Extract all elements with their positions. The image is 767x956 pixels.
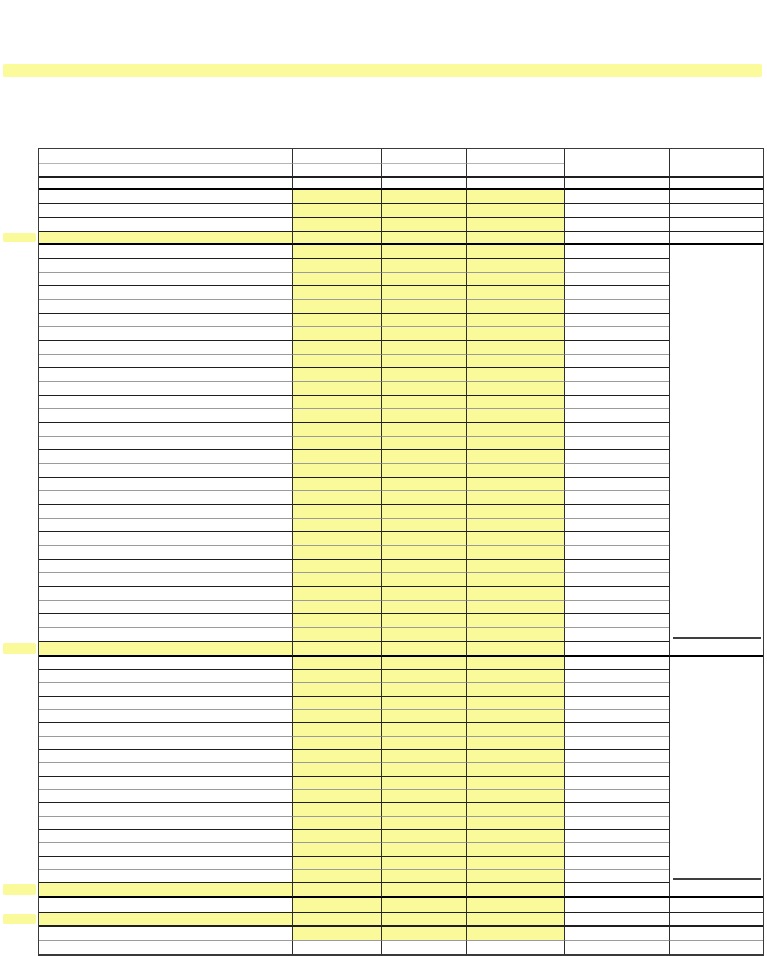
cell-value-column (564, 546, 669, 560)
input-cell-input-column-3[interactable] (466, 614, 564, 628)
input-cell-input-column-3[interactable] (466, 817, 564, 830)
input-cell-input-column-2[interactable] (381, 355, 466, 368)
entry-row (39, 314, 763, 327)
cell-value-column (564, 532, 669, 546)
cell-total-column (669, 913, 763, 927)
input-cell-input-column-1[interactable] (292, 423, 381, 437)
cell-value-column (564, 245, 669, 259)
input-cell-input-column-2[interactable] (381, 670, 466, 683)
cell-label-column (39, 178, 292, 190)
cell-value-column (564, 614, 669, 628)
input-cell-label-column[interactable] (39, 642, 292, 657)
blank-row (39, 941, 763, 954)
cell-total-column (669, 697, 763, 710)
input-cell-input-column-2[interactable] (381, 300, 466, 314)
cell-label-column (39, 327, 292, 341)
input-cell-label-column[interactable] (39, 883, 292, 898)
row-highlight-marker (3, 643, 36, 654)
input-cell-input-column-1[interactable] (292, 560, 381, 573)
input-cell-input-column-2[interactable] (381, 341, 466, 355)
cell-label-column (39, 573, 292, 587)
input-cell-input-column-3[interactable] (466, 437, 564, 450)
cell-value-column (564, 870, 669, 883)
entry-row (39, 273, 763, 286)
input-cell-input-column-2[interactable] (381, 409, 466, 423)
input-cell-input-column-1[interactable] (292, 857, 381, 870)
cell-value-column (564, 817, 669, 830)
input-cell-input-column-2[interactable] (381, 382, 466, 396)
input-cell-input-column-1[interactable] (292, 898, 381, 913)
cell-total-column (669, 409, 763, 423)
input-cell-input-column-2[interactable] (381, 560, 466, 573)
input-cell-input-column-1[interactable] (292, 601, 381, 614)
input-cell-input-column-2[interactable] (381, 898, 466, 913)
input-cell-input-column-1[interactable] (292, 763, 381, 777)
entry-row (39, 777, 763, 790)
entry-row (39, 601, 763, 614)
cell-value-column (564, 396, 669, 409)
cell-label-column (39, 164, 292, 178)
input-cell-input-column-1[interactable] (292, 614, 381, 628)
input-cell-input-column-2[interactable] (381, 519, 466, 532)
input-cell-input-column-1[interactable] (292, 710, 381, 723)
entry-row (39, 464, 763, 478)
input-cell-input-column-3[interactable] (466, 355, 564, 368)
input-cell-input-column-3[interactable] (466, 519, 564, 532)
input-cell-input-column-3[interactable] (466, 204, 564, 218)
cell-total-column (669, 614, 763, 628)
input-cell-input-column-2[interactable] (381, 218, 466, 232)
input-cell-input-column-3[interactable] (466, 450, 564, 464)
input-cell-input-column-3[interactable] (466, 478, 564, 491)
input-cell-input-column-1[interactable] (292, 777, 381, 790)
cell-label-column (39, 314, 292, 327)
cell-total-column (669, 857, 763, 870)
cell-label-column (39, 437, 292, 450)
cell-value-column (564, 164, 669, 178)
input-cell-input-column-2[interactable] (381, 286, 466, 300)
input-cell-input-column-1[interactable] (292, 642, 381, 657)
cell-total-column (669, 870, 763, 883)
input-cell-input-column-3[interactable] (466, 245, 564, 259)
cell-total-column (669, 149, 763, 164)
input-cell-input-column-3[interactable] (466, 532, 564, 546)
cell-total-column (669, 327, 763, 341)
cell-total-column (669, 642, 763, 657)
input-cell-input-column-3[interactable] (466, 927, 564, 941)
entry-row (39, 368, 763, 382)
cell-total-column (669, 830, 763, 843)
input-cell-input-column-1[interactable] (292, 657, 381, 670)
cell-label-column (39, 857, 292, 870)
input-cell-input-column-3[interactable] (466, 409, 564, 423)
input-cell-input-column-1[interactable] (292, 273, 381, 286)
cell-input-column-3 (466, 149, 564, 164)
input-cell-input-column-1[interactable] (292, 737, 381, 750)
input-cell-input-column-1[interactable] (292, 519, 381, 532)
input-cell-input-column-3[interactable] (466, 628, 564, 642)
cell-value-column (564, 670, 669, 683)
input-cell-input-column-2[interactable] (381, 642, 466, 657)
cell-value-column (564, 204, 669, 218)
input-cell-input-column-1[interactable] (292, 450, 381, 464)
cell-total-column (669, 464, 763, 478)
input-cell-input-column-3[interactable] (466, 573, 564, 587)
input-cell-input-column-3[interactable] (466, 657, 564, 670)
cell-label-column (39, 843, 292, 857)
input-cell-input-column-1[interactable] (292, 478, 381, 491)
input-cell-input-column-3[interactable] (466, 286, 564, 300)
input-cell-input-column-2[interactable] (381, 883, 466, 898)
cell-label-column (39, 614, 292, 628)
cell-label-column (39, 670, 292, 683)
input-cell-input-column-1[interactable] (292, 697, 381, 710)
entry-row (39, 750, 763, 763)
input-cell-input-column-1[interactable] (292, 723, 381, 737)
input-cell-input-column-2[interactable] (381, 396, 466, 409)
input-cell-input-column-1[interactable] (292, 883, 381, 898)
input-cell-input-column-3[interactable] (466, 382, 564, 396)
input-cell-input-column-2[interactable] (381, 464, 466, 478)
entry-row (39, 423, 763, 437)
entry-row (39, 670, 763, 683)
input-cell-input-column-1[interactable] (292, 683, 381, 697)
cell-value-column (564, 628, 669, 642)
cell-label-column (39, 259, 292, 273)
input-cell-input-column-3[interactable] (466, 218, 564, 232)
input-cell-input-column-1[interactable] (292, 314, 381, 327)
cell-total-column (669, 817, 763, 830)
input-cell-input-column-1[interactable] (292, 190, 381, 204)
cell-value-column (564, 843, 669, 857)
cell-label-column (39, 505, 292, 519)
cell-label-column (39, 870, 292, 883)
cell-value-column (564, 341, 669, 355)
row-highlight-marker (3, 233, 36, 242)
input-cell-label-column[interactable] (39, 913, 292, 927)
cell-input-column-2 (381, 164, 466, 178)
entry-row (39, 737, 763, 750)
input-cell-input-column-2[interactable] (381, 763, 466, 777)
input-cell-input-column-1[interactable] (292, 464, 381, 478)
input-cell-input-column-1[interactable] (292, 491, 381, 505)
input-cell-input-column-3[interactable] (466, 697, 564, 710)
input-cell-input-column-2[interactable] (381, 601, 466, 614)
cell-label-column (39, 898, 292, 913)
cell-label-column (39, 710, 292, 723)
cell-total-column (669, 670, 763, 683)
cell-label-column (39, 830, 292, 843)
input-cell-input-column-3[interactable] (466, 642, 564, 657)
input-cell-input-column-3[interactable] (466, 883, 564, 898)
input-cell-input-column-1[interactable] (292, 382, 381, 396)
input-cell-input-column-2[interactable] (381, 750, 466, 763)
cell-label-column (39, 532, 292, 546)
cell-label-column (39, 273, 292, 286)
input-cell-input-column-2[interactable] (381, 657, 466, 670)
cell-total-column (669, 710, 763, 723)
input-cell-input-column-2[interactable] (381, 683, 466, 697)
cell-input-column-1 (292, 941, 381, 954)
cell-total-column (669, 218, 763, 232)
input-cell-input-column-3[interactable] (466, 232, 564, 245)
input-cell-input-column-3[interactable] (466, 491, 564, 505)
cell-total-column (669, 737, 763, 750)
input-cell-input-column-1[interactable] (292, 245, 381, 259)
input-cell-input-column-1[interactable] (292, 750, 381, 763)
input-cell-input-column-1[interactable] (292, 437, 381, 450)
input-cell-input-column-2[interactable] (381, 587, 466, 601)
cell-value-column (564, 898, 669, 913)
cell-label-column (39, 491, 292, 505)
input-cell-input-column-3[interactable] (466, 777, 564, 790)
input-cell-input-column-3[interactable] (466, 913, 564, 927)
input-cell-input-column-3[interactable] (466, 750, 564, 763)
cell-label-column (39, 300, 292, 314)
input-cell-input-column-2[interactable] (381, 327, 466, 341)
cell-total-column (669, 927, 763, 941)
cell-total-column (669, 723, 763, 737)
cell-label-column (39, 723, 292, 737)
input-cell-input-column-1[interactable] (292, 259, 381, 273)
input-cell-input-column-2[interactable] (381, 737, 466, 750)
cell-value-column (564, 642, 669, 657)
input-cell-input-column-2[interactable] (381, 532, 466, 546)
input-cell-input-column-2[interactable] (381, 927, 466, 941)
input-cell-input-column-3[interactable] (466, 710, 564, 723)
cell-total-column (669, 803, 763, 817)
input-cell-input-column-2[interactable] (381, 273, 466, 286)
input-cell-input-column-3[interactable] (466, 790, 564, 803)
input-cell-input-column-1[interactable] (292, 396, 381, 409)
entry-row (39, 286, 763, 300)
input-cell-input-column-3[interactable] (466, 898, 564, 913)
input-cell-input-column-2[interactable] (381, 232, 466, 245)
input-cell-input-column-3[interactable] (466, 803, 564, 817)
entry-row (39, 817, 763, 830)
input-cell-input-column-2[interactable] (381, 245, 466, 259)
input-cell-input-column-2[interactable] (381, 790, 466, 803)
cell-value-column (564, 913, 669, 927)
cell-label-column (39, 927, 292, 941)
input-cell-input-column-3[interactable] (466, 763, 564, 777)
input-cell-input-column-1[interactable] (292, 817, 381, 830)
entry-row (39, 491, 763, 505)
input-cell-input-column-2[interactable] (381, 437, 466, 450)
input-cell-input-column-1[interactable] (292, 843, 381, 857)
cell-total-column (669, 314, 763, 327)
input-cell-input-column-3[interactable] (466, 368, 564, 382)
header-row (39, 178, 763, 190)
input-cell-input-column-3[interactable] (466, 396, 564, 409)
input-cell-input-column-1[interactable] (292, 927, 381, 941)
input-cell-input-column-1[interactable] (292, 830, 381, 843)
input-cell-input-column-1[interactable] (292, 790, 381, 803)
cell-value-column (564, 790, 669, 803)
input-cell-input-column-1[interactable] (292, 587, 381, 601)
input-cell-input-column-1[interactable] (292, 505, 381, 519)
input-cell-input-column-2[interactable] (381, 491, 466, 505)
input-cell-input-column-1[interactable] (292, 670, 381, 683)
cell-value-column (564, 491, 669, 505)
cell-value-column (564, 941, 669, 954)
input-cell-input-column-2[interactable] (381, 259, 466, 273)
input-cell-input-column-2[interactable] (381, 817, 466, 830)
input-cell-input-column-3[interactable] (466, 190, 564, 204)
cell-total-column (669, 491, 763, 505)
input-cell-input-column-3[interactable] (466, 723, 564, 737)
cell-value-column (564, 803, 669, 817)
input-cell-input-column-2[interactable] (381, 573, 466, 587)
input-cell-input-column-1[interactable] (292, 204, 381, 218)
entry-row (39, 546, 763, 560)
entry-row (39, 396, 763, 409)
input-cell-input-column-1[interactable] (292, 573, 381, 587)
entry-row (39, 450, 763, 464)
input-cell-input-column-2[interactable] (381, 803, 466, 817)
cell-label-column (39, 423, 292, 437)
input-cell-input-column-2[interactable] (381, 190, 466, 204)
input-cell-input-column-1[interactable] (292, 286, 381, 300)
input-cell-input-column-3[interactable] (466, 314, 564, 327)
entry-row (39, 614, 763, 628)
row-highlight-marker (3, 914, 36, 924)
input-cell-input-column-1[interactable] (292, 803, 381, 817)
cell-value-column (564, 710, 669, 723)
entry-row (39, 437, 763, 450)
entry-row (39, 190, 763, 204)
entry-row (39, 341, 763, 355)
input-cell-input-column-1[interactable] (292, 532, 381, 546)
input-cell-input-column-2[interactable] (381, 546, 466, 560)
cell-value-column (564, 519, 669, 532)
cell-input-column-1 (292, 149, 381, 164)
cell-value-column (564, 478, 669, 491)
input-cell-input-column-1[interactable] (292, 218, 381, 232)
input-cell-input-column-2[interactable] (381, 628, 466, 642)
input-cell-input-column-2[interactable] (381, 830, 466, 843)
entry-row (39, 532, 763, 546)
input-cell-input-column-3[interactable] (466, 464, 564, 478)
cell-total-column (669, 423, 763, 437)
input-cell-input-column-3[interactable] (466, 601, 564, 614)
entry-row (39, 327, 763, 341)
input-cell-input-column-2[interactable] (381, 204, 466, 218)
input-cell-input-column-3[interactable] (466, 843, 564, 857)
cell-label-column (39, 245, 292, 259)
input-cell-input-column-2[interactable] (381, 697, 466, 710)
input-cell-input-column-3[interactable] (466, 546, 564, 560)
input-cell-label-column[interactable] (39, 232, 292, 245)
input-cell-input-column-2[interactable] (381, 314, 466, 327)
highlight-row (39, 883, 763, 898)
input-cell-input-column-3[interactable] (466, 273, 564, 286)
input-cell-input-column-2[interactable] (381, 777, 466, 790)
input-cell-input-column-3[interactable] (466, 857, 564, 870)
page (0, 0, 767, 956)
input-cell-input-column-3[interactable] (466, 870, 564, 883)
input-cell-input-column-2[interactable] (381, 505, 466, 519)
cell-label-column (39, 286, 292, 300)
cell-label-column (39, 803, 292, 817)
entry-row (39, 927, 763, 941)
cell-label-column (39, 750, 292, 763)
cell-value-column (564, 683, 669, 697)
input-cell-input-column-2[interactable] (381, 843, 466, 857)
input-cell-input-column-2[interactable] (381, 710, 466, 723)
input-cell-input-column-3[interactable] (466, 737, 564, 750)
cell-total-column (669, 657, 763, 670)
input-cell-input-column-3[interactable] (466, 683, 564, 697)
input-cell-input-column-3[interactable] (466, 327, 564, 341)
cell-total-column (669, 437, 763, 450)
input-cell-input-column-1[interactable] (292, 355, 381, 368)
cell-total-column (669, 505, 763, 519)
cell-total-column (669, 763, 763, 777)
input-cell-input-column-3[interactable] (466, 341, 564, 355)
input-cell-input-column-3[interactable] (466, 830, 564, 843)
cell-total-column (669, 355, 763, 368)
input-cell-input-column-2[interactable] (381, 870, 466, 883)
cell-input-column-1 (292, 164, 381, 178)
input-cell-input-column-1[interactable] (292, 232, 381, 245)
input-cell-input-column-2[interactable] (381, 857, 466, 870)
input-cell-input-column-3[interactable] (466, 670, 564, 683)
cell-total-column (669, 259, 763, 273)
input-cell-input-column-2[interactable] (381, 614, 466, 628)
header-row (39, 149, 763, 164)
input-cell-input-column-3[interactable] (466, 560, 564, 573)
cell-total-column (669, 382, 763, 396)
input-cell-input-column-3[interactable] (466, 259, 564, 273)
input-cell-input-column-1[interactable] (292, 300, 381, 314)
input-cell-input-column-1[interactable] (292, 913, 381, 927)
input-cell-input-column-1[interactable] (292, 341, 381, 355)
input-cell-input-column-1[interactable] (292, 327, 381, 341)
cell-label-column (39, 190, 292, 204)
input-cell-input-column-2[interactable] (381, 450, 466, 464)
input-cell-input-column-2[interactable] (381, 368, 466, 382)
input-cell-input-column-1[interactable] (292, 546, 381, 560)
cell-label-column (39, 341, 292, 355)
input-cell-input-column-1[interactable] (292, 368, 381, 382)
cell-value-column (564, 464, 669, 478)
input-cell-input-column-1[interactable] (292, 870, 381, 883)
input-cell-input-column-1[interactable] (292, 628, 381, 642)
entry-row (39, 505, 763, 519)
entry-row (39, 830, 763, 843)
input-cell-input-column-3[interactable] (466, 300, 564, 314)
input-cell-input-column-2[interactable] (381, 423, 466, 437)
cell-value-column (564, 657, 669, 670)
cell-value-column (564, 149, 669, 164)
input-cell-input-column-2[interactable] (381, 478, 466, 491)
input-cell-input-column-3[interactable] (466, 587, 564, 601)
cell-input-column-3 (466, 178, 564, 190)
cell-value-column (564, 190, 669, 204)
cell-value-column (564, 327, 669, 341)
input-cell-input-column-3[interactable] (466, 423, 564, 437)
cell-input-column-2 (381, 149, 466, 164)
cell-label-column (39, 464, 292, 478)
input-cell-input-column-2[interactable] (381, 723, 466, 737)
cell-label-column (39, 478, 292, 491)
input-cell-input-column-1[interactable] (292, 409, 381, 423)
input-cell-input-column-3[interactable] (466, 505, 564, 519)
cell-value-column (564, 355, 669, 368)
entry-row (39, 843, 763, 857)
input-cell-input-column-2[interactable] (381, 913, 466, 927)
